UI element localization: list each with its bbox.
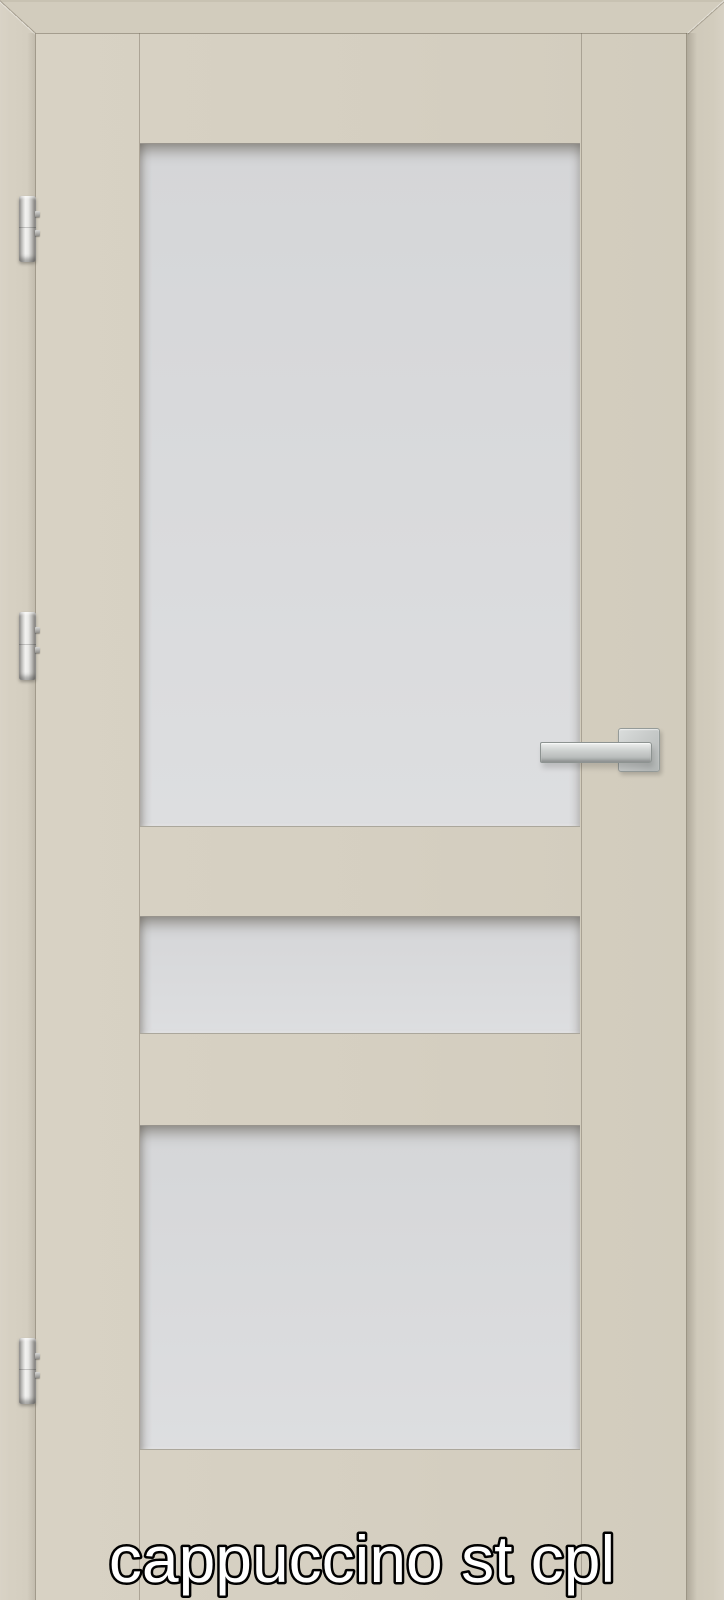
glass-panel-middle xyxy=(140,916,580,1034)
door-product-image: cappuccino st cpl xyxy=(0,0,724,1600)
hinge-pin xyxy=(35,230,40,236)
hinge-pin xyxy=(35,1353,40,1359)
stile-rail-joint-right xyxy=(581,33,582,1600)
handle-lever xyxy=(540,742,652,763)
hinge-pin xyxy=(35,211,40,217)
hinge-pin xyxy=(35,1372,40,1378)
product-label: cappuccino st cpl xyxy=(0,1500,724,1600)
hinge-bottom xyxy=(19,1338,36,1404)
door-frame-gap-top xyxy=(36,33,687,34)
hinge-pin xyxy=(35,627,40,633)
hinge-top xyxy=(19,196,36,262)
door-leaf xyxy=(36,33,687,1600)
glass-panel-top xyxy=(140,143,580,827)
hinge-pin xyxy=(35,647,40,653)
door-frame-head xyxy=(0,0,724,33)
hinge-middle xyxy=(19,612,36,680)
product-label-text: cappuccino st cpl xyxy=(109,1522,615,1596)
glass-panel-bottom xyxy=(140,1125,580,1450)
door-edge-shadow-right xyxy=(687,33,697,1600)
